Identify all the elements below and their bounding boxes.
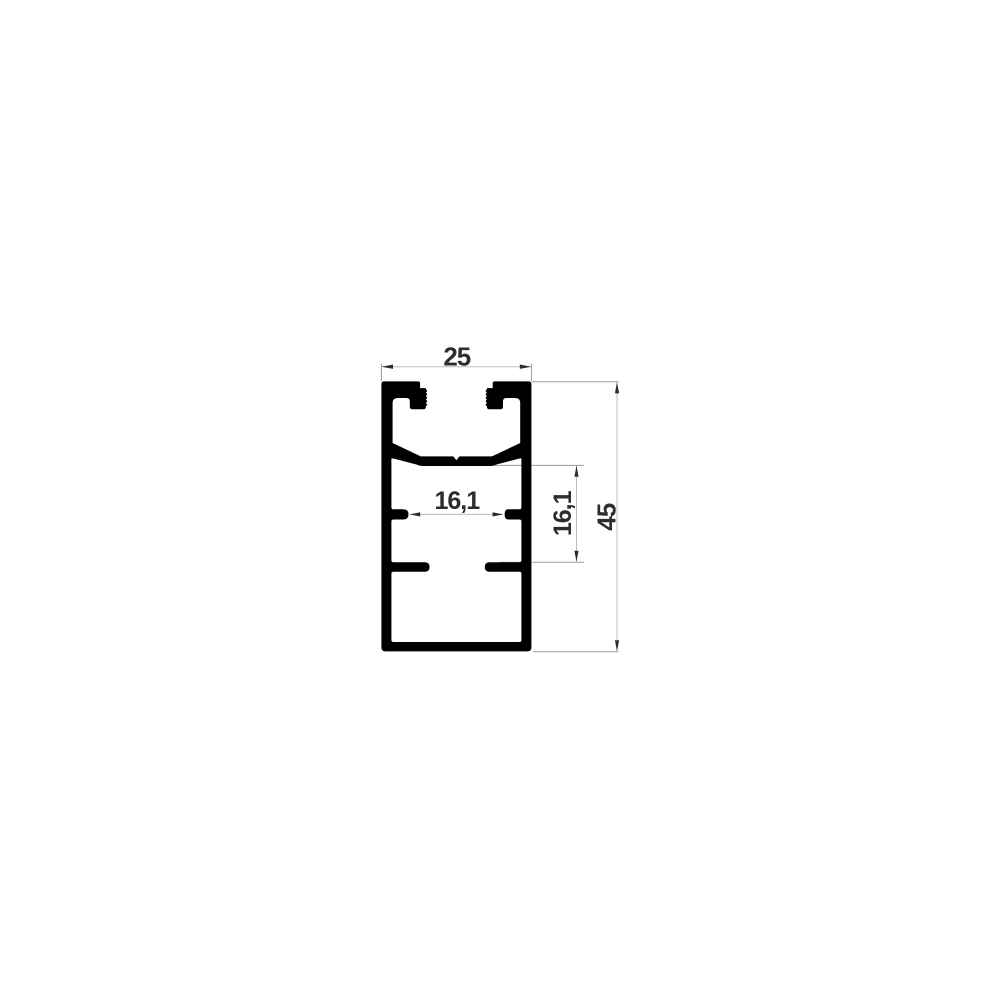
svg-text:25: 25 [443, 341, 470, 371]
svg-text:16,1: 16,1 [434, 487, 480, 515]
svg-text:45: 45 [592, 503, 622, 530]
svg-text:16,1: 16,1 [549, 490, 577, 536]
